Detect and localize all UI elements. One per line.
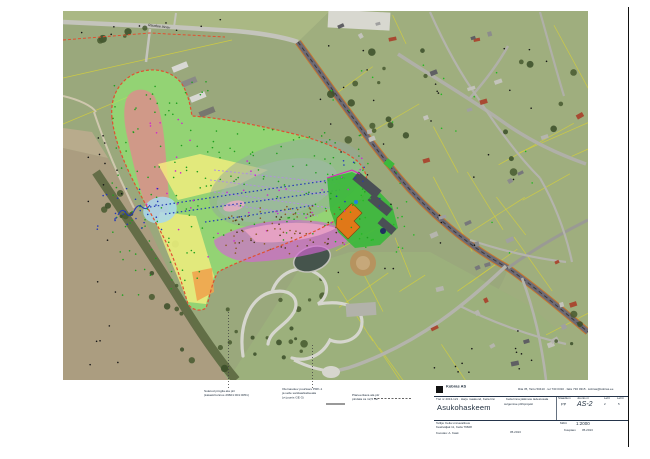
leht-label: Leht [604, 397, 610, 401]
sheet-number: AS-2 [577, 401, 593, 408]
date-label: Kuupäev [564, 429, 576, 433]
project-line2: sulgemise põhiprojekt [504, 403, 533, 407]
title-block: Kobras AS Riia 35, Tartu 50410 · tel 730… [434, 383, 628, 445]
project-line1: Keila linna jäätmete ladestusala [506, 398, 548, 402]
date-value: 05.2013 [582, 429, 593, 433]
lehti-value: 5 [618, 403, 620, 407]
annotation-a-line2: (katastritunnus 29601:001:0051) [204, 394, 272, 398]
stage-label: Staadium [558, 397, 571, 401]
scale-label: Mõõt [560, 422, 567, 426]
client-line2: Keskväljak 11, Keila 76608 [436, 426, 472, 430]
stage-value: PP [561, 403, 566, 407]
leht-value: 2 [604, 403, 606, 407]
company-logo [436, 386, 443, 393]
scale-value: 1:2000 [576, 421, 590, 426]
annotation-b-line3: (vt joonis GE-3) [282, 396, 337, 400]
company-contact: Riia 35, Tartu 50410 · tel 730 0310 · fa… [518, 388, 613, 392]
annotation-c-line2: pindala ca 12,5 ha [352, 398, 420, 402]
drawing-title: Asukohaskeem [437, 403, 491, 412]
author-line: Koostas: A. Kask [436, 432, 459, 436]
company-name: Kobras AS [446, 385, 466, 389]
lehti-label: Lehti [617, 397, 624, 401]
job-number-line: Töö nr 2013-121 · Harju maakond, Keila l… [436, 398, 495, 402]
drawing-sheet: Raudtee tänav Suletud prügila ala piir (… [0, 0, 650, 459]
center-note: 05.2013 [510, 431, 521, 435]
